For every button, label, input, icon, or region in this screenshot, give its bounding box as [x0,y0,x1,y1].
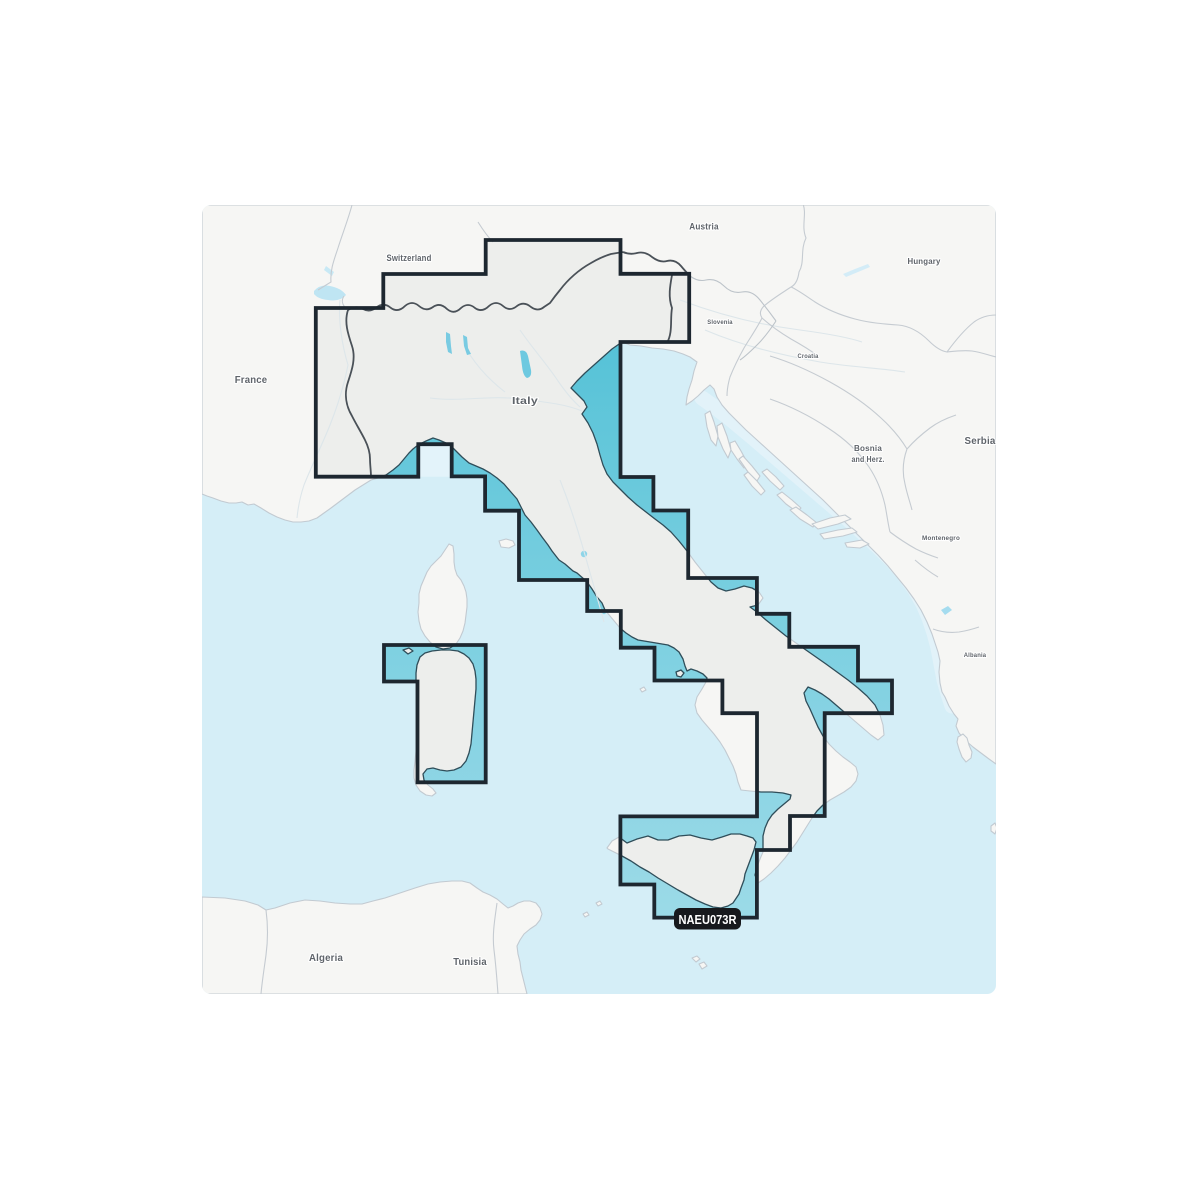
svg-text:and Herz.: and Herz. [852,455,885,464]
svg-text:Montenegro: Montenegro [922,535,960,542]
svg-text:Slovenia: Slovenia [707,319,733,326]
svg-text:Tunisia: Tunisia [453,957,487,968]
svg-text:Switzerland: Switzerland [387,253,432,263]
svg-text:NAEU073R: NAEU073R [679,912,737,927]
svg-text:France: France [235,374,268,386]
svg-text:Algeria: Algeria [309,953,343,964]
svg-text:Italy: Italy [512,395,538,407]
svg-text:Serbia: Serbia [965,436,996,447]
svg-text:Hungary: Hungary [908,256,941,266]
svg-text:Croatia: Croatia [798,353,819,360]
svg-text:Austria: Austria [689,222,719,233]
svg-text:Albania: Albania [964,652,987,659]
svg-text:Bosnia: Bosnia [854,444,882,453]
